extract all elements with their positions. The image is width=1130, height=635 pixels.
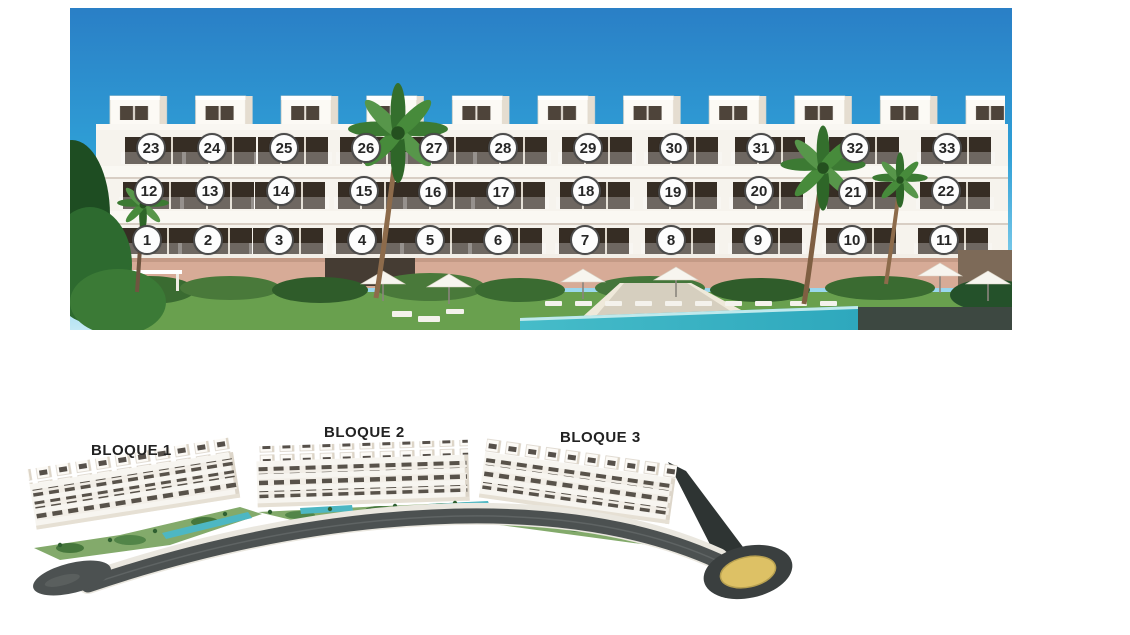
block-label-bloque-2: BLOQUE 2 (324, 424, 405, 441)
unit-marker-14[interactable]: 14 (266, 176, 296, 206)
unit-marker-30[interactable]: 30 (659, 133, 689, 163)
unit-marker-4[interactable]: 4 (347, 225, 377, 255)
unit-marker-13[interactable]: 13 (195, 176, 225, 206)
unit-marker-27[interactable]: 27 (419, 133, 449, 163)
unit-marker-26[interactable]: 26 (351, 133, 381, 163)
unit-marker-12[interactable]: 12 (134, 176, 164, 206)
siteplan-label-layer: BLOQUE 1BLOQUE 2BLOQUE 3 (0, 408, 850, 635)
unit-marker-2[interactable]: 2 (193, 225, 223, 255)
block-label-bloque-1: BLOQUE 1 (91, 442, 172, 459)
unit-marker-29[interactable]: 29 (573, 133, 603, 163)
unit-marker-22[interactable]: 22 (931, 176, 961, 206)
unit-marker-1[interactable]: 1 (132, 225, 162, 255)
unit-marker-16[interactable]: 16 (418, 177, 448, 207)
unit-marker-25[interactable]: 25 (269, 133, 299, 163)
unit-marker-21[interactable]: 21 (838, 177, 868, 207)
unit-marker-11[interactable]: 11 (929, 225, 959, 255)
block-label-bloque-3: BLOQUE 3 (560, 429, 641, 446)
unit-marker-19[interactable]: 19 (658, 177, 688, 207)
unit-marker-7[interactable]: 7 (570, 225, 600, 255)
facade-marker-layer: 2324252627282930313233121314151617181920… (70, 8, 1012, 330)
unit-marker-8[interactable]: 8 (656, 225, 686, 255)
unit-marker-10[interactable]: 10 (837, 225, 867, 255)
unit-marker-20[interactable]: 20 (744, 176, 774, 206)
unit-marker-6[interactable]: 6 (483, 225, 513, 255)
unit-marker-24[interactable]: 24 (197, 133, 227, 163)
unit-marker-5[interactable]: 5 (415, 225, 445, 255)
unit-marker-18[interactable]: 18 (571, 176, 601, 206)
unit-marker-32[interactable]: 32 (840, 133, 870, 163)
unit-marker-31[interactable]: 31 (746, 133, 776, 163)
unit-marker-15[interactable]: 15 (349, 176, 379, 206)
unit-marker-3[interactable]: 3 (264, 225, 294, 255)
unit-marker-17[interactable]: 17 (486, 177, 516, 207)
unit-marker-23[interactable]: 23 (136, 133, 166, 163)
unit-marker-9[interactable]: 9 (743, 225, 773, 255)
unit-marker-28[interactable]: 28 (488, 133, 518, 163)
unit-marker-33[interactable]: 33 (932, 133, 962, 163)
facade-render: 2324252627282930313233121314151617181920… (70, 8, 1012, 330)
page: 2324252627282930313233121314151617181920… (0, 0, 1130, 635)
siteplan-render: BLOQUE 1BLOQUE 2BLOQUE 3 (0, 408, 850, 635)
